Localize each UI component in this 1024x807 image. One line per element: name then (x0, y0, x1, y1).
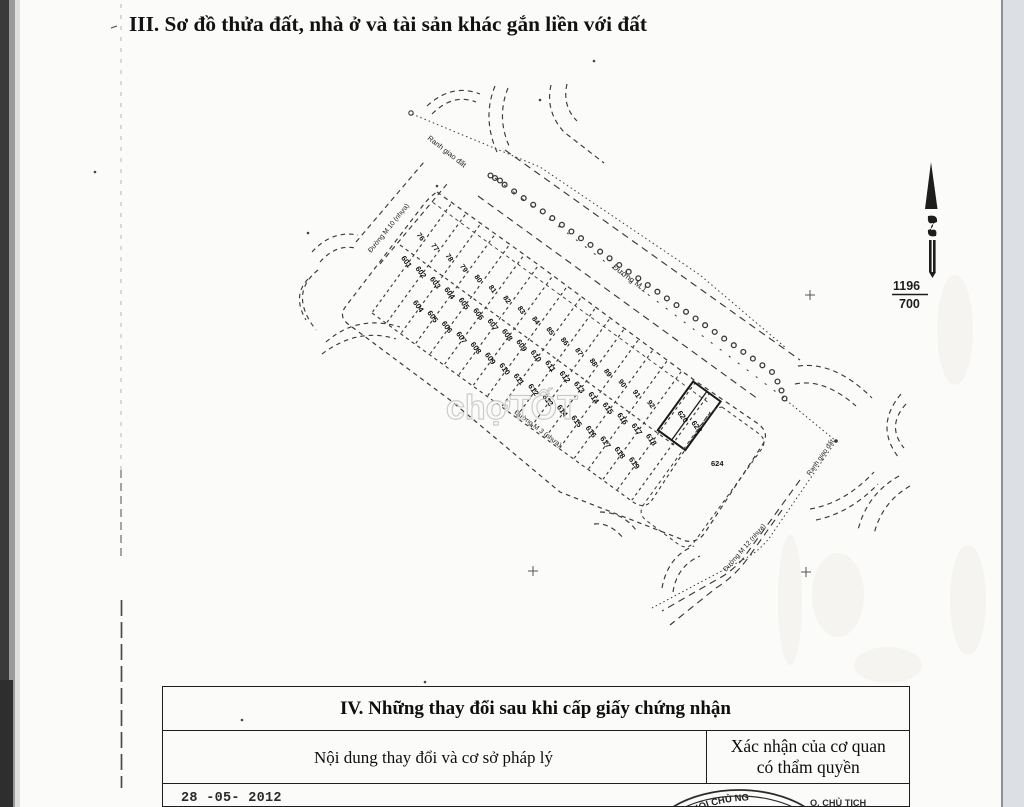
svg-text:618: 618 (644, 432, 659, 448)
svg-text:601: 601 (399, 254, 414, 270)
svg-text:606: 606 (471, 306, 486, 322)
svg-text:Đường M 1: Đường M 1 (611, 262, 649, 294)
svg-text:1196: 1196 (893, 279, 920, 293)
svg-text:624: 624 (711, 459, 724, 468)
svg-text:623: 623 (689, 419, 704, 435)
svg-text:614: 614 (586, 390, 601, 406)
svg-text:90: 90 (616, 377, 628, 389)
svg-text:604: 604 (411, 298, 426, 314)
svg-text:607: 607 (485, 317, 500, 333)
svg-text:88: 88 (588, 356, 600, 368)
svg-text:620: 620 (675, 409, 690, 425)
svg-text:618: 618 (612, 445, 627, 461)
svg-text:609: 609 (514, 338, 529, 354)
svg-text:616: 616 (615, 411, 630, 427)
svg-text:chợTỐT: chợTỐT (446, 388, 578, 427)
svg-text:80: 80 (472, 273, 484, 285)
svg-text:85: 85 (544, 325, 556, 337)
svg-text:605: 605 (425, 309, 440, 325)
svg-text:Ranh giao đất: Ranh giao đất (804, 437, 836, 477)
svg-text:609: 609 (483, 351, 498, 367)
svg-text:615: 615 (601, 400, 616, 416)
svg-text:602: 602 (413, 264, 428, 280)
svg-text:82: 82 (501, 294, 513, 306)
svg-text:77: 77 (429, 241, 441, 253)
svg-text:612: 612 (557, 369, 572, 385)
svg-text:617: 617 (598, 434, 613, 450)
svg-text:91: 91 (631, 388, 643, 400)
svg-text:607: 607 (454, 330, 469, 346)
svg-text:611: 611 (543, 359, 558, 375)
svg-text:617: 617 (629, 421, 644, 437)
svg-text:610: 610 (497, 361, 512, 377)
svg-text:700: 700 (899, 297, 920, 311)
svg-text:608: 608 (468, 340, 483, 356)
svg-text:619: 619 (627, 455, 642, 471)
svg-text:Ranh giao đất: Ranh giao đất (426, 133, 469, 169)
svg-text:83: 83 (516, 304, 528, 316)
svg-text:611: 611 (512, 372, 527, 388)
svg-text:Đường M 10 (nhựa): Đường M 10 (nhựa) (367, 203, 411, 255)
svg-text:606: 606 (440, 319, 455, 335)
svg-text:605: 605 (457, 296, 472, 312)
svg-text:608: 608 (500, 327, 515, 343)
svg-text:616: 616 (584, 424, 599, 440)
svg-text:Đường M 12 (nhựa): Đường M 12 (nhựa) (722, 523, 767, 573)
svg-text:604: 604 (442, 285, 457, 301)
svg-text:610: 610 (529, 348, 544, 364)
svg-text:603: 603 (428, 275, 443, 291)
